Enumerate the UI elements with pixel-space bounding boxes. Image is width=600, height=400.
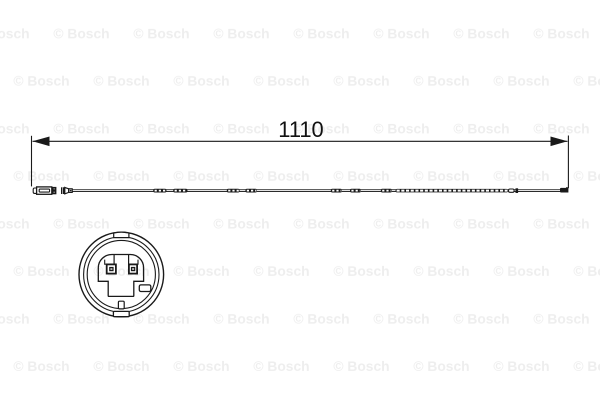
svg-text:1110: 1110 [278,117,323,142]
